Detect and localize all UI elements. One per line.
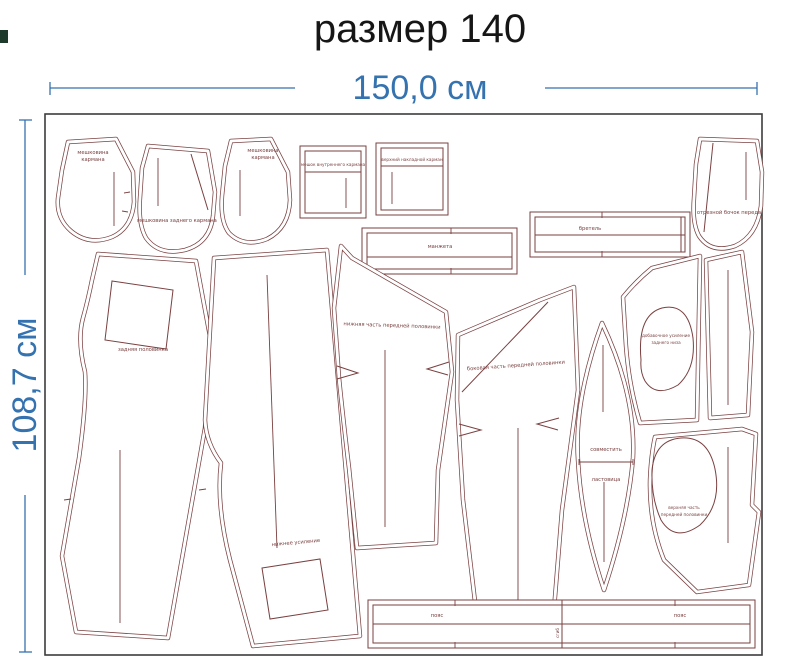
height-dimension: 108,7 см: [6, 120, 44, 652]
piece-label: пояс: [674, 613, 687, 619]
piece-pocket-bag-left: мешковина кармана: [58, 139, 134, 240]
piece-right-strip: [706, 252, 752, 418]
piece-label: мешок внутреннего кармана: [301, 162, 366, 167]
piece-label: мешковина: [77, 150, 108, 156]
pocket-bag-center-outline: [140, 146, 215, 252]
piece-pocket-bag-right: мешковина кармана: [222, 139, 290, 242]
piece-label: верхний накладной карман: [381, 157, 442, 162]
piece-label: бретель: [579, 226, 601, 232]
width-dimension-label: 150,0 см: [353, 69, 488, 107]
piece-label: отрезной бочок переда: [697, 209, 761, 216]
patch-pocket-outline: [376, 143, 448, 215]
piece-label: манжета: [428, 244, 453, 250]
piece-label: мешковина заднего кармана: [137, 218, 217, 224]
cuff-outline: [362, 228, 517, 274]
piece-extra-reinforcement: добавочное усиление заднего низа: [623, 256, 700, 423]
piece-label: кармана: [81, 157, 104, 163]
piece-inner-pocket: мешок внутреннего кармана: [300, 146, 366, 218]
piece-label: задняя половинка: [118, 347, 168, 353]
corner-mark: [0, 30, 8, 43]
piece-label: мешковина: [247, 148, 278, 154]
piece-pocket-bag-center: мешковина заднего кармана: [137, 146, 217, 252]
piece-label: совместить: [590, 447, 622, 453]
piece-strap: бретель: [530, 212, 690, 257]
piece-label: пояс: [431, 613, 444, 619]
piece-label: ластовица: [592, 477, 621, 483]
piece-label: добавочное усиление: [642, 333, 691, 338]
fold-label: сгиб: [555, 628, 560, 638]
pattern-layout-page: размер 140 150,0 см 108,7 см мешковина к…: [0, 0, 800, 663]
height-dimension-label: 108,7 см: [6, 318, 44, 453]
piece-label: верхняя часть: [668, 505, 700, 510]
inner-pocket-outline: [300, 146, 366, 218]
width-dimension: 150,0 см: [50, 69, 757, 107]
piece-waistband: пояс сгиб пояс: [368, 600, 755, 648]
piece-label: передней половинки: [661, 512, 708, 517]
piece-cuff: манжета: [362, 228, 517, 274]
piece-label: заднего низа: [651, 340, 681, 345]
piece-patch-pocket: верхний накладной карман: [376, 143, 448, 215]
piece-label: кармана: [251, 155, 274, 161]
pattern-layout-canvas: размер 140 150,0 см 108,7 см мешковина к…: [0, 0, 800, 663]
page-title: размер 140: [314, 7, 526, 51]
piece-front-side-panel: отрезной бочок переда: [694, 139, 762, 248]
